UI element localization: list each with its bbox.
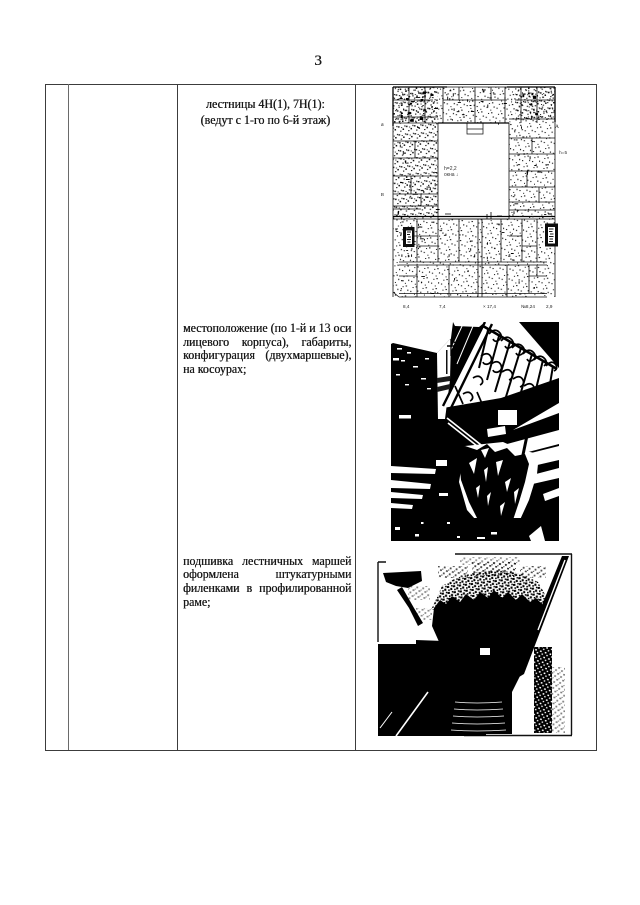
svg-text:× 17,4: × 17,4: [483, 304, 496, 309]
svg-text:№8,24: №8,24: [521, 304, 535, 309]
svg-text:2,9: 2,9: [546, 304, 553, 309]
svg-text:окна ↓: окна ↓: [444, 172, 458, 178]
svg-text:7,4: 7,4: [439, 304, 446, 309]
svg-text:h=5: h=5: [559, 150, 567, 156]
svg-text:А: А: [555, 124, 559, 130]
svg-text:в: в: [381, 192, 384, 198]
svg-text:8,4: 8,4: [403, 304, 410, 309]
svg-text:а: а: [381, 122, 384, 128]
